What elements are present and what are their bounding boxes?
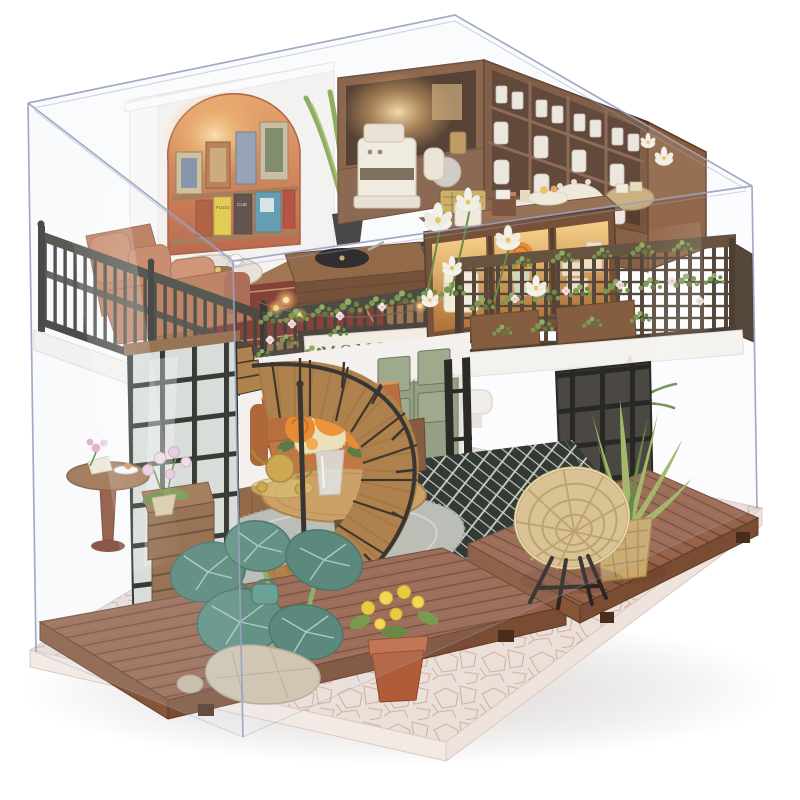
- product-photo: FUDG CUE: [0, 0, 800, 800]
- dollhouse-scene: FUDG CUE: [0, 0, 800, 800]
